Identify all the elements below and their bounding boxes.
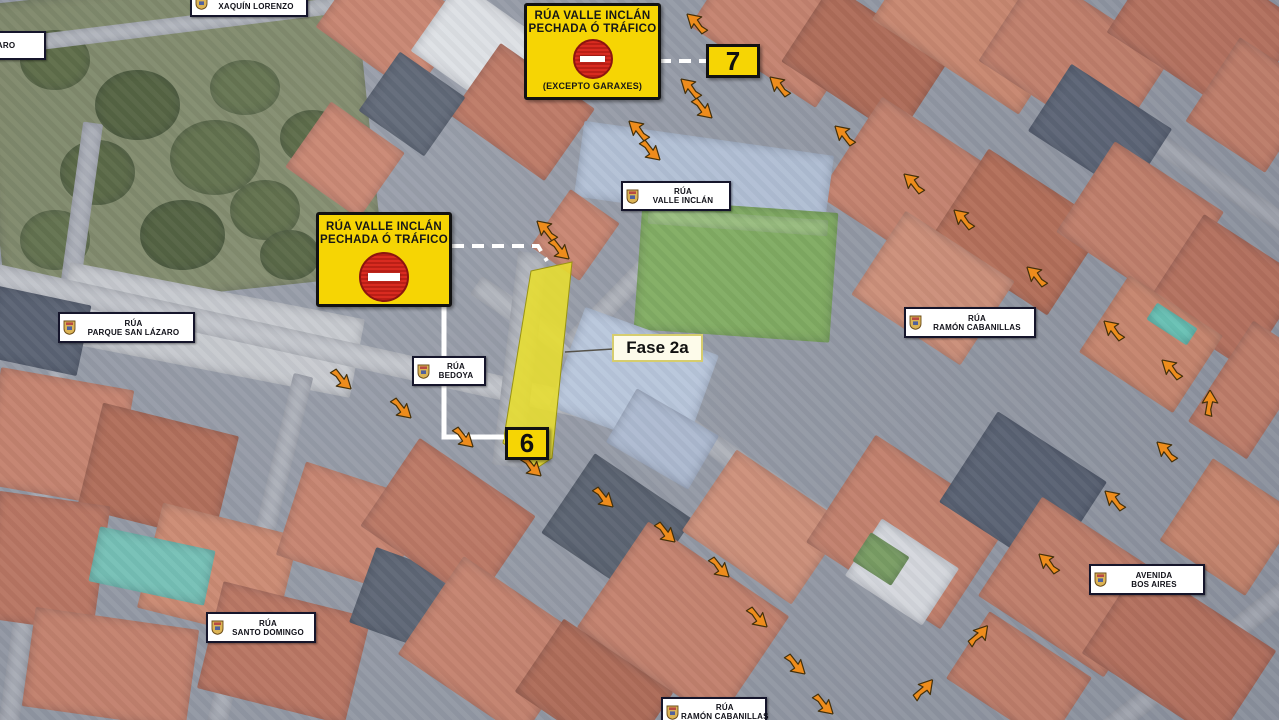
street-sign-santo-domingo: RÚASANTO DOMINGO (206, 612, 316, 643)
street-sign-text: RÚAVALLE INCLÁN (641, 187, 729, 205)
closure-sign-top-note: (EXCEPTO GARAXES) (527, 81, 658, 91)
closure-sign-top-line2: PECHADA Ó TRÁFICO (527, 23, 658, 36)
street-sign-parque-san-lazaro: RÚAPARQUE SAN LÁZARO (58, 312, 195, 343)
crest-icon (1094, 572, 1107, 587)
phase-label: Fase 2a (612, 334, 703, 362)
no-entry-bar (368, 273, 399, 281)
no-entry-bar (580, 56, 605, 63)
crest-icon (626, 189, 639, 204)
street-sign-text: RÚAXAQUÍN LORENZO (210, 0, 306, 11)
street-sign-ramon-cabanillas-sur: RÚARAMÓN CABANILLAS (661, 697, 767, 720)
no-entry-icon (573, 39, 613, 79)
street-sign-xaquin-lorenzo: RÚAXAQUÍN LORENZO (190, 0, 308, 17)
street-sign-ramon-cabanillas: RÚARAMÓN CABANILLAS (904, 307, 1036, 338)
junction-marker-6: 6 (505, 427, 549, 460)
street-sign-text: RÚABEDOYA (432, 362, 484, 380)
street-sign-text: LÁZARO (0, 41, 44, 50)
street-sign-text: RÚASANTO DOMINGO (226, 619, 314, 637)
crest-icon (211, 620, 224, 635)
crest-icon (666, 705, 679, 720)
crest-icon (909, 315, 922, 330)
crest-icon (63, 320, 76, 335)
street-sign-text: RÚARAMÓN CABANILLAS (924, 314, 1034, 332)
closure-sign-mid: RÚA VALLE INCLÁN PECHADA Ó TRÁFICO (316, 212, 452, 307)
street-sign-bedoya: RÚABEDOYA (412, 356, 486, 386)
crest-icon (195, 0, 208, 10)
closure-sign-mid-line1: RÚA VALLE INCLÁN (319, 221, 449, 234)
street-sign-text: RÚARAMÓN CABANILLAS (681, 703, 773, 720)
street-sign-valle-inclan: RÚAVALLE INCLÁN (621, 181, 731, 211)
junction-marker-7: 7 (706, 44, 760, 78)
closure-sign-top-line1: RÚA VALLE INCLÁN (527, 10, 658, 23)
street-sign-avenida-bos-aires: AVENIDABOS AIRES (1089, 564, 1205, 595)
closure-sign-top: RÚA VALLE INCLÁN PECHADA Ó TRÁFICO (EXCE… (524, 3, 661, 100)
map-canvas: RÚAXAQUÍN LORENZOLÁZARORÚAPARQUE SAN LÁZ… (0, 0, 1279, 720)
crest-icon (417, 364, 430, 379)
street-sign-lazaro: LÁZARO (0, 31, 46, 60)
closure-sign-mid-line2: PECHADA Ó TRÁFICO (319, 234, 449, 247)
no-entry-icon (359, 252, 409, 302)
street-sign-text: RÚAPARQUE SAN LÁZARO (78, 319, 193, 337)
street-sign-text: AVENIDABOS AIRES (1109, 571, 1203, 589)
